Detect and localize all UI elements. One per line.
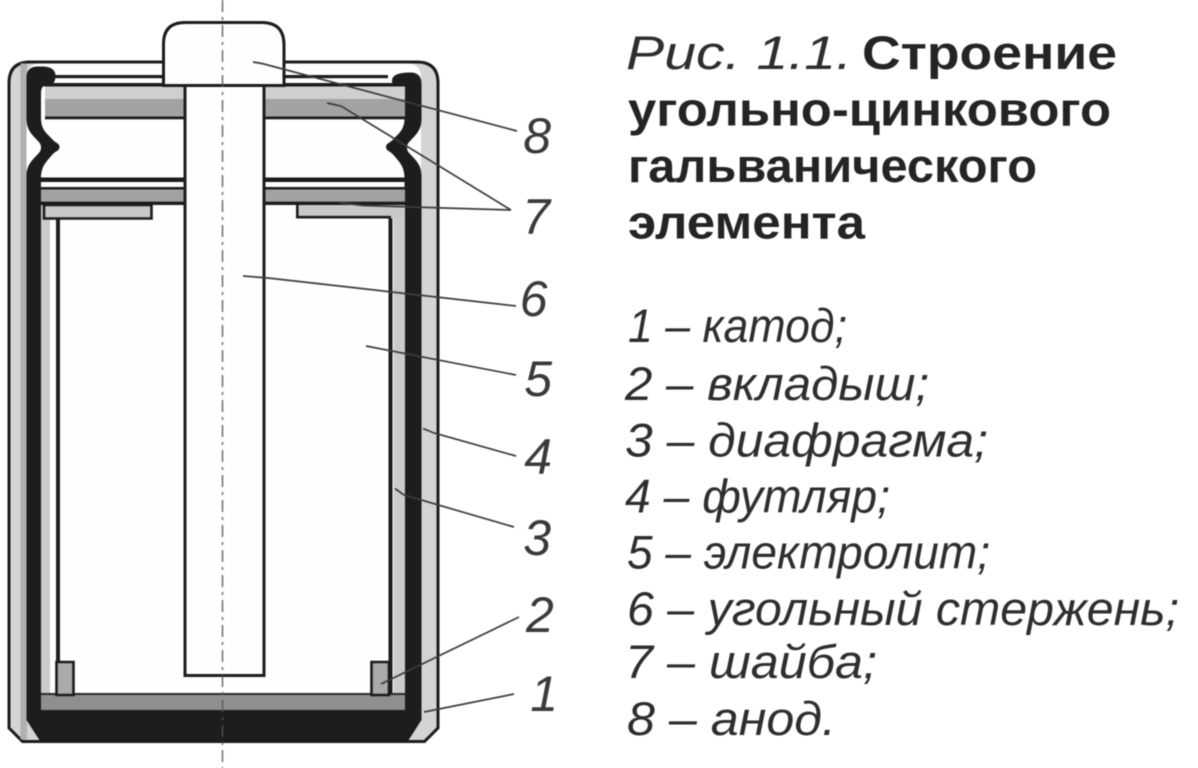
svg-text:1 – катод;: 1 – катод;	[628, 299, 847, 352]
svg-text:гальванического: гальванического	[628, 139, 1037, 192]
svg-text:5 – электролит;: 5 – электролит;	[627, 526, 990, 579]
svg-text:2: 2	[525, 587, 554, 643]
svg-text:3 – диафрагма;: 3 – диафрагма;	[625, 414, 988, 467]
svg-text:8 – анод.: 8 – анод.	[627, 692, 836, 745]
svg-text:элемента: элемента	[628, 196, 866, 249]
svg-text:2 – вкладыш;: 2 – вкладыш;	[624, 357, 929, 410]
svg-text:Рис. 1.1.: Рис. 1.1.	[626, 26, 852, 79]
svg-text:1: 1	[530, 666, 558, 722]
svg-text:5: 5	[524, 351, 552, 407]
svg-text:угольно-цинкового: угольно-цинкового	[628, 83, 1111, 136]
svg-text:7: 7	[522, 189, 552, 245]
svg-text:4 – футляр;: 4 – футляр;	[625, 470, 890, 523]
svg-text:6: 6	[520, 271, 548, 327]
svg-text:6 – угольный стержень;: 6 – угольный стержень;	[627, 582, 1179, 635]
svg-text:3: 3	[523, 510, 551, 566]
svg-text:7 – шайба;: 7 – шайба;	[625, 635, 877, 688]
svg-text:4: 4	[524, 429, 552, 485]
svg-text:8: 8	[523, 108, 551, 164]
svg-text:Строение: Строение	[862, 26, 1117, 79]
